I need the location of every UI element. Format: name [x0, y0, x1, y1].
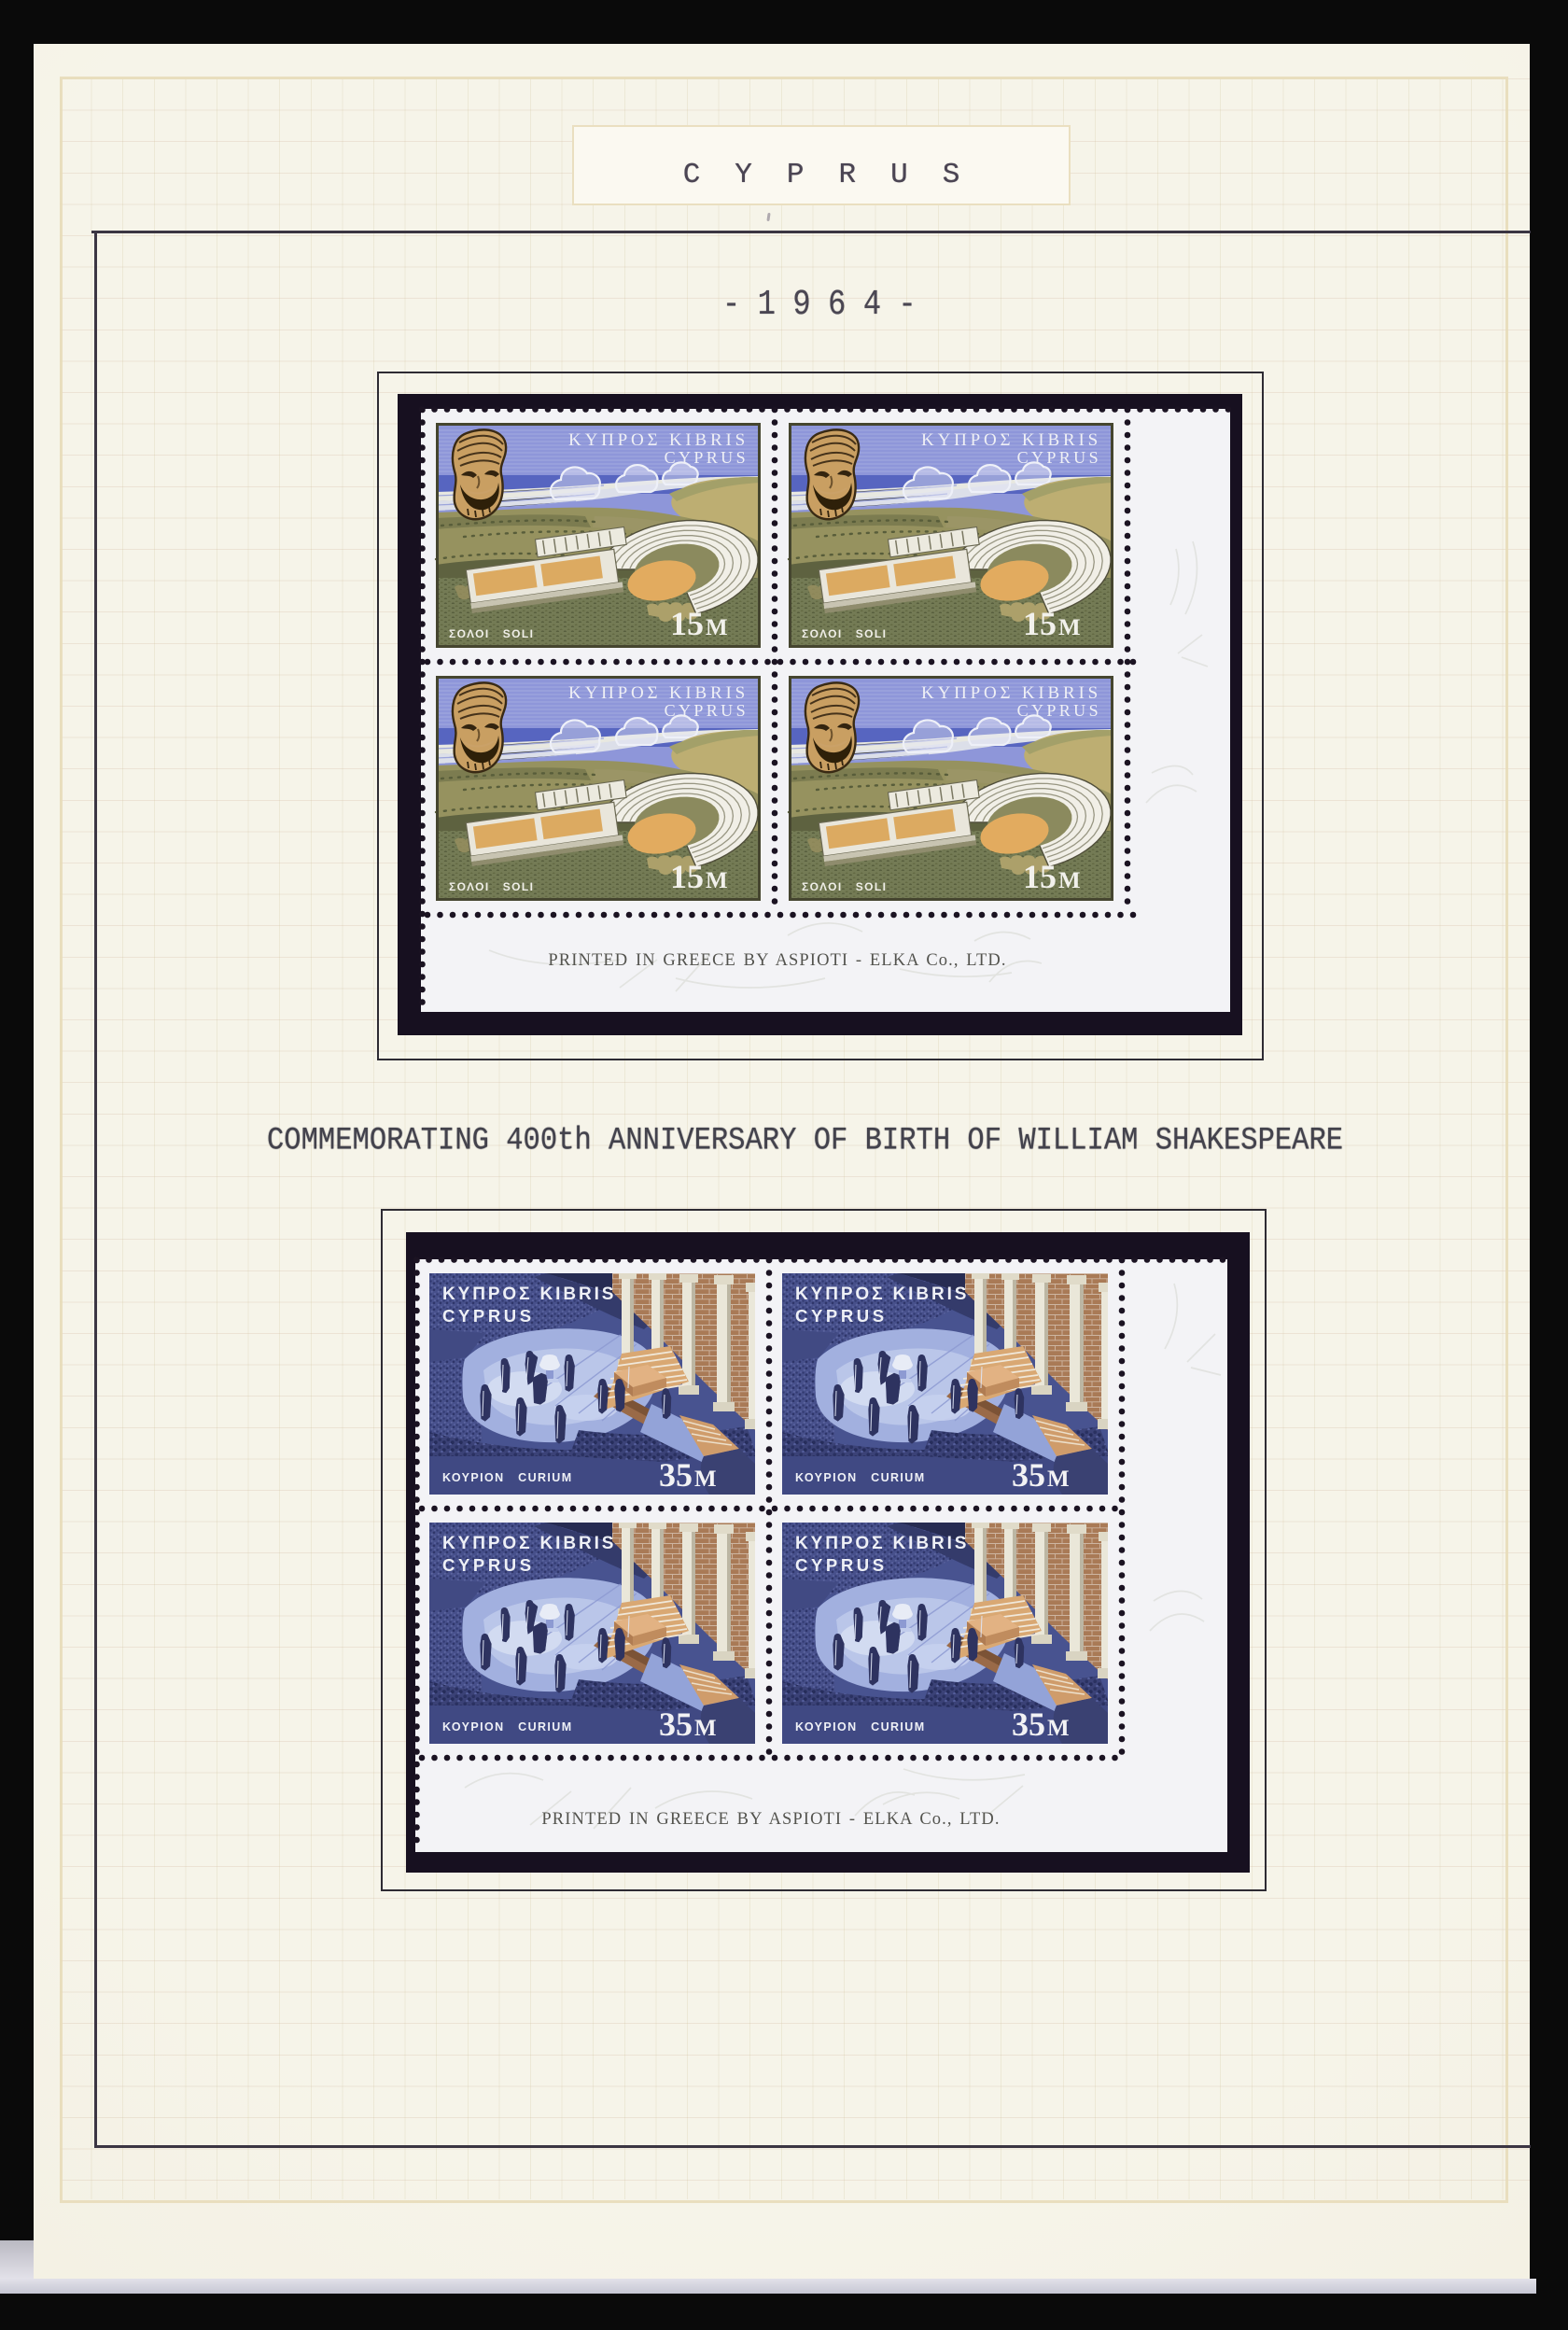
svg-text:PRINTED IN GREECE BY ASPIOTI -: PRINTED IN GREECE BY ASPIOTI - ELKA Co.,… — [548, 951, 1006, 970]
svg-text:PRINTED IN GREECE BY ASPIOTI -: PRINTED IN GREECE BY ASPIOTI - ELKA Co.,… — [541, 1810, 1000, 1829]
